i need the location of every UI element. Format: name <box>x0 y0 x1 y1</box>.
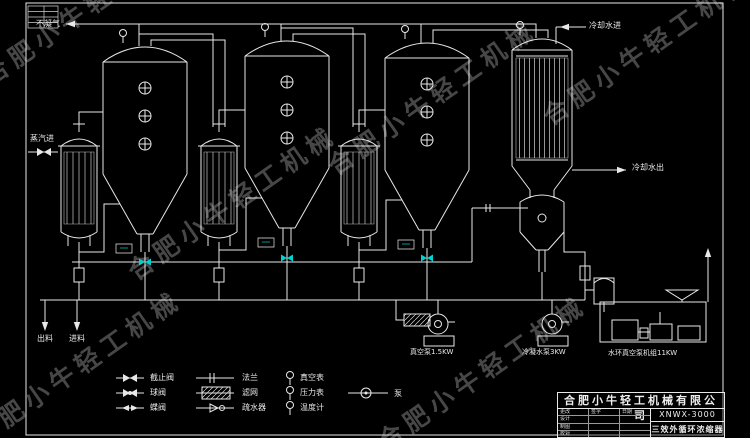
title-block: 合肥小牛轻工机械有限公司 更改 签字 日期 设计 制图 <box>557 392 725 438</box>
legend-label: 压力表 <box>300 388 324 397</box>
empty-cell <box>589 424 620 430</box>
empty-cell <box>589 431 620 437</box>
evaporator-1 <box>103 47 187 252</box>
company-name: 合肥小牛轻工机械有限公司 <box>558 393 724 409</box>
legend-globe-valve-icon <box>123 374 137 382</box>
feed-discharge-lines <box>42 300 80 331</box>
cooling-water-out-line <box>572 167 626 173</box>
condensate-network <box>40 204 585 300</box>
vapor-duct-3 <box>421 24 548 43</box>
label-non-condensable: 不凝气 <box>36 19 60 28</box>
drawing-model-number: XNWX-3000 <box>651 409 724 422</box>
row-label: 制图 <box>558 424 589 430</box>
col-header: 签字 <box>589 409 620 415</box>
label-feed: 进料 <box>69 334 85 343</box>
evaporator-3 <box>385 43 469 248</box>
heater-3 <box>338 124 380 256</box>
evaporator-2 <box>245 41 329 246</box>
condenser <box>512 39 572 272</box>
legend-label: 真空表 <box>300 373 324 382</box>
legend-ball-valve-icon <box>123 389 137 397</box>
label-discharge: 出料 <box>37 334 53 343</box>
empty-cell <box>589 416 620 422</box>
legend-vacuum-gauge-icon <box>287 372 294 386</box>
pump-area <box>396 300 552 326</box>
label-vacuum-unit: 水环真空泵机组11KW <box>608 349 677 358</box>
vapor-duct-2 <box>281 28 365 127</box>
legend-label: 温度计 <box>300 403 324 412</box>
label-pump-right: 冷凝水泵3KW <box>522 348 566 357</box>
legend-label: 蝶阀 <box>150 403 166 412</box>
legend-label: 截止阀 <box>150 373 174 382</box>
pressure-gauge-icon <box>120 30 127 44</box>
vapor-duct-1 <box>139 34 225 127</box>
empty-cell <box>620 416 650 422</box>
title-block-signoff: 更改 签字 日期 设计 制图 校对 <box>558 409 651 437</box>
empty-cell <box>620 424 650 430</box>
row-label: 设计 <box>558 416 589 422</box>
label-cooling-water-out: 冷却水出 <box>632 163 664 172</box>
legend-label: 疏水器 <box>242 403 266 412</box>
vent-line <box>66 21 536 38</box>
vacuum-pump-unit <box>585 248 711 342</box>
condensate-pump-icon <box>538 310 569 346</box>
drawing-title: 三效外循环浓缩器 <box>651 422 724 437</box>
label-pump-left: 真空泵1.5KW <box>410 348 453 357</box>
circulation-risers <box>79 110 385 124</box>
label-steam-in: 蒸汽进 <box>30 134 54 143</box>
sheet-border <box>26 3 723 435</box>
label-cooling-water-in: 冷却水进 <box>589 21 621 30</box>
equipment-tags <box>116 238 414 253</box>
heater-1 <box>58 124 100 256</box>
pressure-gauge-icon <box>402 26 409 40</box>
steam-valve-icon <box>37 148 51 156</box>
legend-label: 泵 <box>394 389 402 398</box>
vacuum-riser <box>564 202 590 300</box>
pressure-gauge-icon <box>262 24 269 38</box>
legend-label: 球阀 <box>150 388 166 397</box>
heater-2 <box>198 124 240 256</box>
process-diagram <box>0 0 750 438</box>
col-header: 日期 <box>620 409 650 415</box>
drawing-sheet: 合肥小牛轻工机械 合肥小牛轻工机械 合肥小牛轻工机械 合肥小牛轻工机械 合肥小牛… <box>0 0 750 438</box>
row-label: 校对 <box>558 431 589 437</box>
legend-thermometer-icon <box>287 402 294 416</box>
cooling-water-in-line <box>556 24 586 44</box>
legend-pressure-gauge-icon <box>287 387 294 401</box>
legend-label: 法兰 <box>242 373 258 382</box>
legend-label: 滤网 <box>242 388 258 397</box>
empty-cell <box>620 431 650 437</box>
col-header: 更改 <box>558 409 589 415</box>
